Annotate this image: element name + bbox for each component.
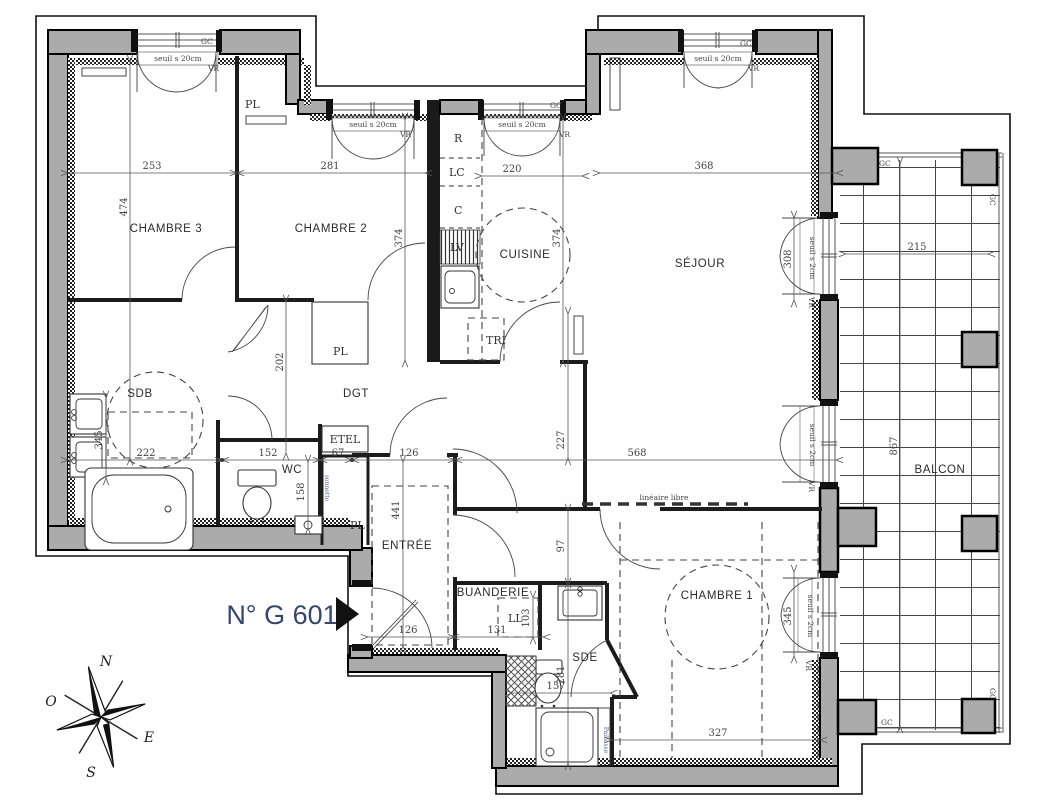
facade-pier	[838, 700, 876, 734]
balcony-pillar	[962, 332, 997, 367]
seuil-label: seuil s 20cm	[498, 120, 545, 129]
vr-label: VR	[807, 296, 816, 308]
dim-wc-width: 152	[258, 448, 277, 459]
dim-buanderie-width: 131	[487, 625, 506, 636]
compass-north: N	[99, 654, 113, 670]
balcony-pillar	[962, 516, 997, 551]
appliance-label-c: C	[454, 204, 462, 217]
closet-label-pl: PL	[333, 345, 348, 358]
room-label-sde: SDE	[572, 652, 597, 664]
dim-chambre1-door: 345	[783, 606, 794, 625]
compass-west: O	[45, 694, 57, 710]
vr-label: VR	[207, 64, 219, 73]
dim-buanderie-height: 103	[521, 608, 532, 627]
vr-label: VR	[747, 64, 759, 73]
compass-south: S	[86, 765, 96, 781]
dim-entree-width: 126	[399, 448, 418, 459]
radiator	[610, 58, 620, 110]
lineaire-libre-label: linéaire libre	[640, 493, 690, 502]
duct-hatch	[506, 656, 536, 706]
dim-passage-height: 97	[556, 540, 567, 553]
french-door-sejour-2: seuil s 2cm	[780, 400, 838, 488]
radiator	[82, 68, 126, 76]
dim-balcon-height: 867	[889, 436, 900, 455]
dim-chambre2-height: 374	[394, 228, 405, 247]
sonnette-label: sonnette	[323, 475, 330, 502]
compass-rose: N S O E	[44, 654, 158, 781]
room-labels: CHAMBRE 3 CHAMBRE 2 CUISINE SÉJOUR SDB D…	[127, 223, 965, 664]
paillasse-label: Paillasse	[602, 727, 609, 754]
unit-number: N° G 601	[226, 600, 337, 630]
kitchen-appliances	[440, 118, 504, 360]
room-label-cuisine: CUISINE	[500, 249, 551, 261]
dim-balcon-width: 215	[907, 242, 926, 253]
shower-tray	[536, 708, 598, 766]
dim-sejour-width: 368	[694, 161, 713, 172]
balcony-pillar	[962, 150, 997, 185]
dim-dgt-height: 202	[275, 352, 286, 371]
dim-cuisine-height: 374	[552, 228, 563, 247]
gc-label: GC	[988, 194, 997, 206]
dim-chambre1-width: 327	[708, 728, 727, 739]
room-label-dgt: DGT	[343, 388, 369, 400]
dim-sejour-bottom: 568	[627, 448, 646, 459]
dim-chambre3-width: 253	[142, 161, 161, 172]
appliance-label-lv: LV	[450, 241, 465, 254]
etel-label: ETEL	[330, 433, 361, 446]
dim-chambre3-height: 474	[119, 197, 130, 216]
dim-cuisine-width: 220	[502, 164, 521, 175]
dim-sde-height: 281	[556, 665, 567, 684]
appliance-label-lc: LC	[449, 166, 465, 179]
room-label-wc: WC	[282, 464, 302, 476]
seuil-label: seuil s 20cm	[349, 120, 396, 129]
dim-corridor-height: 227	[556, 430, 567, 449]
room-label-buanderie: BUANDERIE	[457, 587, 530, 599]
room-label-balcon: BALCON	[915, 464, 966, 476]
dim-etel-width: 67	[332, 448, 345, 459]
exterior-walls	[48, 30, 878, 786]
dim-sdb-height: 345	[94, 430, 105, 449]
dim-sdb-width: 222	[136, 448, 155, 459]
dim-entree-width2: 126	[398, 625, 417, 636]
appliance-label-ll: LL	[508, 612, 523, 625]
gc-label: GC	[201, 37, 213, 46]
appliance-label-r: R	[454, 132, 463, 145]
balcony	[840, 150, 1003, 733]
room-label-entree: ENTRÉE	[382, 539, 432, 552]
dim-entree-height: 441	[391, 500, 402, 519]
seuil-label: seuil s 2cm	[808, 237, 817, 280]
gc-label: GC	[988, 688, 997, 700]
radiator	[246, 116, 286, 124]
vr-label: VR	[804, 659, 813, 671]
title-block: N° G 601	[226, 597, 359, 631]
dim-sejour-door: 308	[783, 249, 794, 268]
kitchen-shaft-wall	[427, 100, 440, 362]
balcony-pillar	[962, 699, 995, 733]
vr-label: VR	[558, 130, 570, 139]
gc-label: GC	[550, 101, 562, 110]
room-label-chambre2: CHAMBRE 2	[295, 223, 368, 235]
gc-label: GC	[740, 39, 752, 48]
vr-label: VR	[399, 130, 411, 139]
floor-plan: seuil s 20cm seuil s 20cm seuil s 20cm s…	[0, 0, 1050, 800]
dim-chambre2-width: 281	[320, 161, 339, 172]
dim-wc-height: 158	[296, 482, 307, 501]
tri-label: TRI	[486, 334, 506, 347]
facade-pier	[820, 488, 838, 572]
compass-east: E	[143, 730, 154, 746]
bathtub	[85, 468, 193, 550]
room-label-sejour: SÉJOUR	[675, 257, 725, 270]
seuil-label: seuil s 2cm	[806, 595, 815, 638]
facade-pier	[832, 148, 878, 184]
closet-label-pl: PL	[245, 98, 260, 111]
closet-label-pl: PL	[350, 519, 365, 532]
seuil-label: seuil s 20cm	[694, 54, 741, 63]
seuil-label: seuil s 20cm	[154, 54, 201, 63]
vr-label: VR	[807, 480, 816, 492]
room-label-sdb: SDB	[127, 388, 152, 400]
facade-pier	[838, 508, 876, 546]
room-label-chambre3: CHAMBRE 3	[130, 223, 203, 235]
gc-label: GC	[881, 718, 893, 727]
radiator	[574, 316, 583, 354]
room-label-chambre1: CHAMBRE 1	[681, 590, 754, 602]
gc-label: GC	[879, 159, 891, 168]
